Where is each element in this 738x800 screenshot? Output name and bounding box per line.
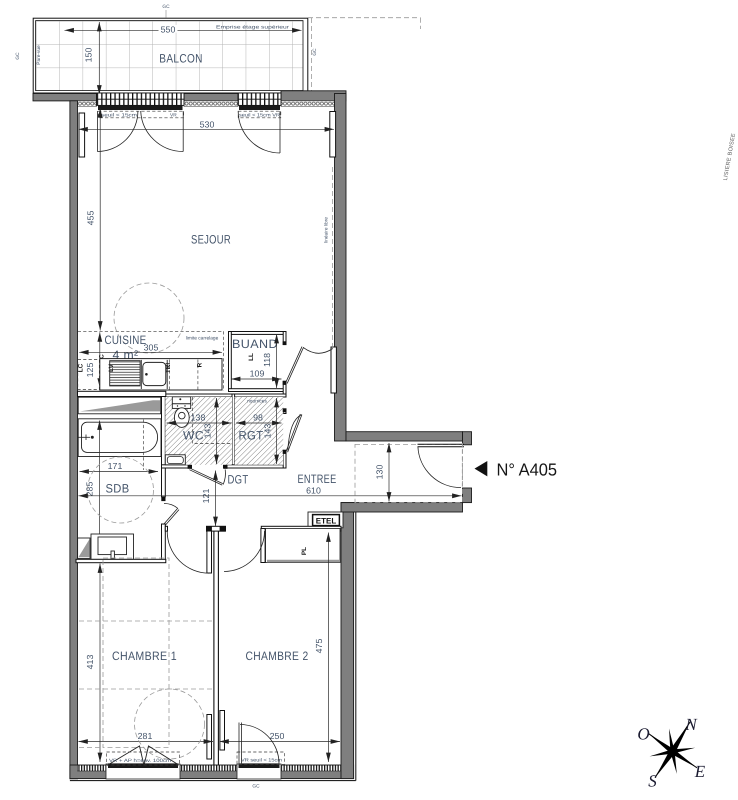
svg-text:BUAND: BUAND bbox=[232, 337, 278, 351]
svg-text:LC: LC bbox=[78, 363, 85, 372]
svg-text:305: 305 bbox=[144, 342, 159, 352]
svg-text:GC: GC bbox=[312, 48, 318, 56]
svg-text:455: 455 bbox=[86, 211, 96, 226]
svg-text:SDB: SDB bbox=[106, 482, 130, 496]
svg-text:130: 130 bbox=[374, 465, 384, 480]
svg-text:CHAMBRE 2: CHAMBRE 2 bbox=[246, 649, 309, 663]
svg-text:R: R bbox=[197, 362, 204, 367]
svg-text:GC: GC bbox=[252, 784, 260, 790]
svg-text:125: 125 bbox=[85, 363, 95, 378]
svg-text:RGT: RGT bbox=[239, 429, 264, 443]
svg-text:E: E bbox=[694, 762, 706, 781]
svg-text:281: 281 bbox=[138, 731, 153, 741]
svg-text:285: 285 bbox=[85, 482, 95, 497]
svg-text:413: 413 bbox=[85, 655, 95, 670]
svg-text:seuil < 15cm VR: seuil < 15cm VR bbox=[239, 112, 281, 118]
svg-text:TRI: TRI bbox=[165, 363, 172, 374]
svg-text:GC: GC bbox=[162, 4, 170, 10]
svg-text:CHAMBRE 1: CHAMBRE 1 bbox=[112, 649, 177, 663]
svg-text:475: 475 bbox=[314, 639, 324, 654]
svg-text:PL: PL bbox=[301, 547, 308, 555]
svg-text:O: O bbox=[637, 725, 649, 744]
svg-text:ENTREE: ENTREE bbox=[298, 472, 337, 486]
svg-text:Pare-vue: Pare-vue bbox=[36, 45, 42, 65]
svg-text:610: 610 bbox=[306, 485, 321, 495]
svg-text:98: 98 bbox=[253, 413, 263, 423]
svg-text:C: C bbox=[99, 354, 106, 359]
svg-text:N° A405: N° A405 bbox=[497, 460, 558, 480]
svg-text:171: 171 bbox=[108, 461, 123, 471]
svg-text:S: S bbox=[648, 772, 657, 791]
svg-text:LV: LV bbox=[108, 363, 115, 371]
svg-text:530: 530 bbox=[200, 119, 215, 129]
svg-text:seuil < 15cm: seuil < 15cm bbox=[101, 112, 137, 118]
svg-text:CUISINE: CUISINE bbox=[105, 333, 147, 347]
svg-text:linéaire libre: linéaire libre bbox=[324, 217, 330, 243]
svg-text:550: 550 bbox=[161, 24, 176, 34]
svg-text:143: 143 bbox=[263, 424, 273, 439]
svg-text:nourrices: nourrices bbox=[247, 399, 267, 405]
svg-text:109: 109 bbox=[250, 369, 265, 379]
svg-text:ETEL: ETEL bbox=[316, 517, 337, 526]
svg-text:Emprise étage supérieur: Emprise étage supérieur bbox=[216, 25, 290, 31]
svg-text:BALCON: BALCON bbox=[159, 52, 203, 66]
svg-text:VR seuil < 15cm: VR seuil < 15cm bbox=[241, 758, 282, 764]
svg-text:138: 138 bbox=[191, 413, 206, 423]
svg-text:250: 250 bbox=[270, 731, 285, 741]
svg-text:SEJOUR: SEJOUR bbox=[191, 233, 231, 247]
svg-text:150: 150 bbox=[84, 48, 94, 63]
svg-text:limite carrelage: limite carrelage bbox=[186, 336, 219, 342]
svg-text:N: N bbox=[684, 715, 698, 734]
svg-text:GC: GC bbox=[15, 52, 21, 60]
svg-text:VR: VR bbox=[170, 112, 177, 118]
svg-text:VR + AP h=env. 100cm: VR + AP h=env. 100cm bbox=[109, 758, 171, 764]
svg-text:118: 118 bbox=[262, 353, 272, 367]
svg-text:LL: LL bbox=[248, 353, 255, 361]
svg-text:143: 143 bbox=[203, 424, 213, 439]
svg-text:WC: WC bbox=[183, 429, 204, 443]
svg-text:DGT: DGT bbox=[228, 473, 249, 487]
